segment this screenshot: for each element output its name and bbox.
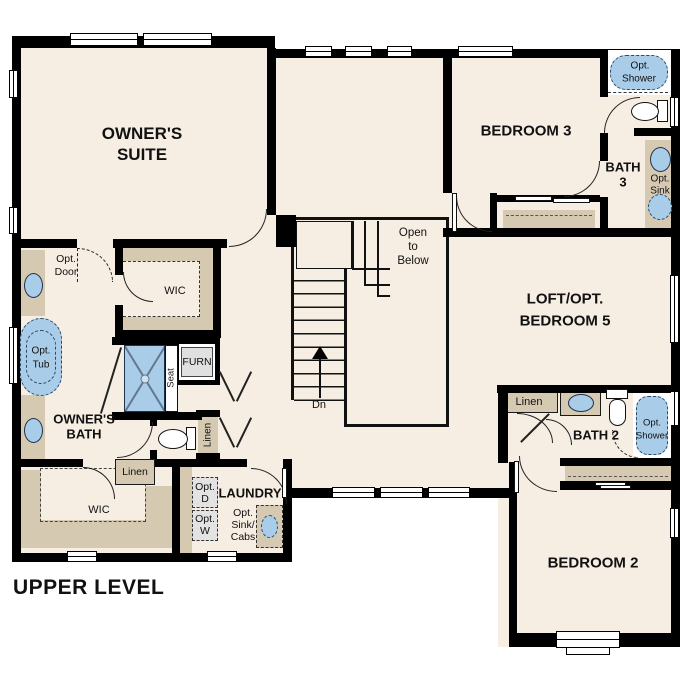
wall xyxy=(172,459,180,562)
opt-washer-label: W xyxy=(200,525,210,537)
toilet-bowl xyxy=(158,429,188,449)
opt-door-label: Door xyxy=(55,266,78,278)
window xyxy=(332,487,375,498)
sink xyxy=(24,418,43,443)
stair-winder xyxy=(352,268,390,270)
window xyxy=(428,487,470,498)
open-to-below-label: Below xyxy=(397,255,428,267)
stair-arrow-up-icon xyxy=(312,346,328,359)
window xyxy=(207,551,237,562)
wall xyxy=(600,197,608,237)
window xyxy=(67,551,97,562)
linen-hall-label: Linen xyxy=(203,423,214,447)
window xyxy=(70,33,138,46)
window xyxy=(387,46,412,57)
room-label-bath2: BATH 2 xyxy=(573,428,619,443)
window xyxy=(345,46,372,57)
window xyxy=(458,46,513,57)
wall xyxy=(443,58,452,193)
wall xyxy=(267,48,276,215)
opt-shower-bath2-label: Opt. xyxy=(643,418,661,429)
wic-second-shelving xyxy=(21,520,165,548)
room-label-loft: BEDROOM 5 xyxy=(520,313,611,330)
room-label-owners-bath: OWNER'S xyxy=(53,412,115,427)
opt-sink-bath3-label: Sink xyxy=(650,186,669,197)
closet-rod-line xyxy=(506,215,592,216)
window xyxy=(9,207,18,234)
wall xyxy=(12,239,77,248)
room-label-wic-second: WIC xyxy=(88,504,109,516)
opt-door-label: Opt. xyxy=(56,253,76,265)
window xyxy=(670,508,679,538)
room-label-owners-suite: OWNER'S xyxy=(102,124,183,144)
sink xyxy=(568,394,594,412)
window xyxy=(9,327,18,384)
optional-sink xyxy=(648,194,672,220)
room-label-bedroom3: BEDROOM 3 xyxy=(481,123,572,140)
window xyxy=(380,487,423,498)
toilet-tank xyxy=(606,389,628,399)
furnace-label: FURN xyxy=(182,356,211,368)
sink xyxy=(650,147,671,172)
shower-curb-line xyxy=(608,92,668,93)
wall xyxy=(213,248,221,338)
wall xyxy=(113,239,227,248)
linen-entry-label: Linen xyxy=(122,466,148,478)
bedroom2-closet-shelf xyxy=(565,466,671,481)
room-label-bedroom2: BEDROOM 2 xyxy=(548,555,639,572)
bedroom3-closet-shelf xyxy=(503,210,595,230)
door-leaf xyxy=(514,461,519,493)
opt-dryer-label: D xyxy=(201,493,209,505)
room-label-loft: LOFT/OPT. xyxy=(527,291,604,308)
window xyxy=(143,33,212,46)
wall xyxy=(172,459,247,467)
bypass-door xyxy=(600,485,631,489)
wall xyxy=(600,133,608,161)
opt-shower-bath2-label: Shower xyxy=(636,431,668,442)
room-label-bath3: BATH xyxy=(605,160,640,175)
room-label-owners-bath: BATH xyxy=(66,427,101,442)
stair-arrow-stem xyxy=(319,358,321,398)
shower-drain-icon xyxy=(140,374,149,383)
open-to-below-label: to xyxy=(408,241,418,253)
stair-rail-bottom xyxy=(346,424,449,427)
window xyxy=(670,97,679,127)
stair-winder xyxy=(352,221,354,270)
wall xyxy=(196,410,220,417)
wall xyxy=(671,49,680,647)
shower xyxy=(124,345,165,412)
stair-winder xyxy=(377,295,390,297)
window xyxy=(556,631,620,648)
open-to-below-label: Open xyxy=(399,227,427,239)
sink xyxy=(24,273,43,298)
stair-direction-label: Dn xyxy=(312,399,326,411)
toilet-bowl xyxy=(609,399,626,426)
opt-shower-bath3-label: Shower xyxy=(622,74,656,85)
window xyxy=(670,391,679,426)
wall xyxy=(600,50,608,97)
window xyxy=(670,275,679,343)
shower-seat-label: Seat xyxy=(166,368,177,388)
room-label-wic-owner: WIC xyxy=(164,285,185,297)
wall xyxy=(12,36,21,562)
floor-plan: OWNER'S SUITE BEDROOM 3 BATH 3 LOFT/OPT.… xyxy=(0,0,687,687)
window-sill xyxy=(566,647,610,655)
optional-laundry-sink xyxy=(261,515,278,538)
opt-washer-label: Opt. xyxy=(195,513,215,525)
door-leaf xyxy=(282,468,287,498)
wall xyxy=(12,553,292,562)
linen-bath2-label: Linen xyxy=(516,396,543,408)
wall xyxy=(112,412,202,420)
room-label-laundry: LAUNDRY xyxy=(218,486,281,501)
wall xyxy=(12,459,83,467)
wall xyxy=(560,458,680,466)
plan-title: UPPER LEVEL xyxy=(13,576,164,600)
window xyxy=(9,70,18,98)
stair-landing xyxy=(296,221,352,269)
bypass-door xyxy=(553,198,590,203)
wall xyxy=(497,385,680,393)
opt-tub-label: Tub xyxy=(33,360,50,371)
door-leaf xyxy=(452,193,457,232)
opt-shower-bath3-label: Opt. xyxy=(631,61,650,72)
wall xyxy=(155,459,172,467)
wall xyxy=(498,385,508,463)
opt-sink-cabs-label: Cabs xyxy=(231,531,256,543)
wall xyxy=(276,215,296,247)
window xyxy=(305,46,332,57)
room-label-bath3: 3 xyxy=(619,175,626,190)
stair-winder xyxy=(364,221,366,286)
stair-rail-right xyxy=(446,217,449,427)
closet-rod-line xyxy=(568,476,668,477)
opt-sink-cabs-label: Sink/ xyxy=(231,519,254,531)
opt-tub-label: Opt. xyxy=(32,346,51,357)
bathtub-inner-line xyxy=(26,330,56,384)
room-label-owners-suite: SUITE xyxy=(117,145,167,165)
laundry-counter-strip xyxy=(180,467,192,553)
opt-dryer-label: Opt. xyxy=(195,481,215,493)
wic-second-shelving xyxy=(145,486,172,548)
stair-winder xyxy=(364,284,390,286)
bypass-door xyxy=(515,196,552,201)
wall xyxy=(115,248,123,275)
opt-sink-bath3-label: Opt. xyxy=(651,174,670,185)
stair-rail-top xyxy=(296,217,449,220)
opt-sink-cabs-label: Opt. xyxy=(233,507,253,519)
